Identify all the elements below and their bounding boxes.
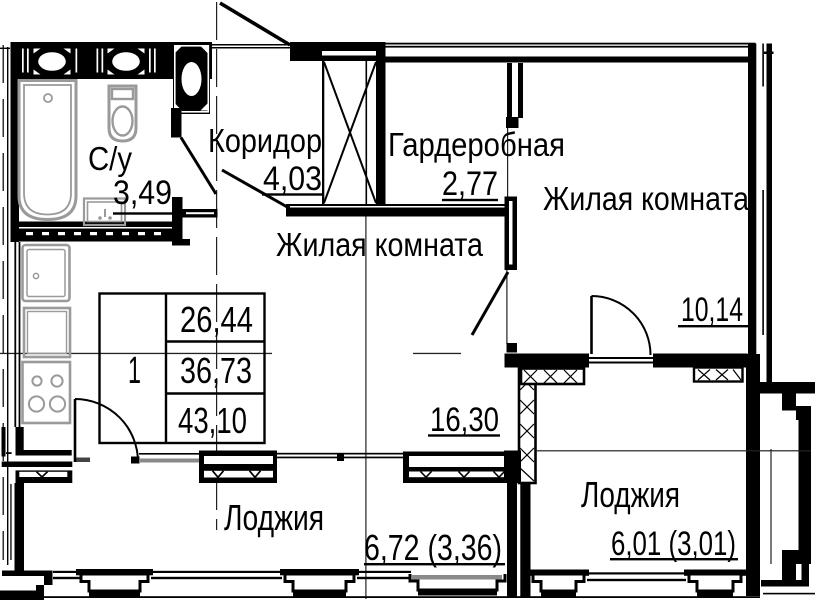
svg-text:26,44: 26,44 [180, 299, 253, 340]
svg-text:43,10: 43,10 [178, 400, 247, 441]
svg-text:1: 1 [128, 350, 141, 392]
svg-text:6,01 (3,01): 6,01 (3,01) [611, 525, 736, 563]
svg-text:С/у: С/у [88, 140, 132, 177]
svg-text:6,72 (3,36): 6,72 (3,36) [364, 527, 502, 568]
svg-text:Лоджия: Лоджия [224, 497, 324, 538]
svg-text:Коридор: Коридор [208, 122, 322, 159]
svg-text:36,73: 36,73 [180, 350, 252, 391]
svg-text:Гардеробная: Гардеробная [388, 126, 565, 163]
svg-text:Жилая комната: Жилая комната [276, 226, 484, 263]
svg-text:3,49: 3,49 [113, 174, 172, 212]
svg-text:Жилая комната: Жилая комната [543, 180, 750, 217]
svg-text:2,77: 2,77 [442, 165, 498, 203]
svg-text:16,30: 16,30 [430, 401, 499, 439]
svg-text:Лоджия: Лоджия [581, 474, 680, 515]
svg-text:4,03: 4,03 [263, 160, 322, 198]
svg-text:10,14: 10,14 [681, 291, 743, 329]
